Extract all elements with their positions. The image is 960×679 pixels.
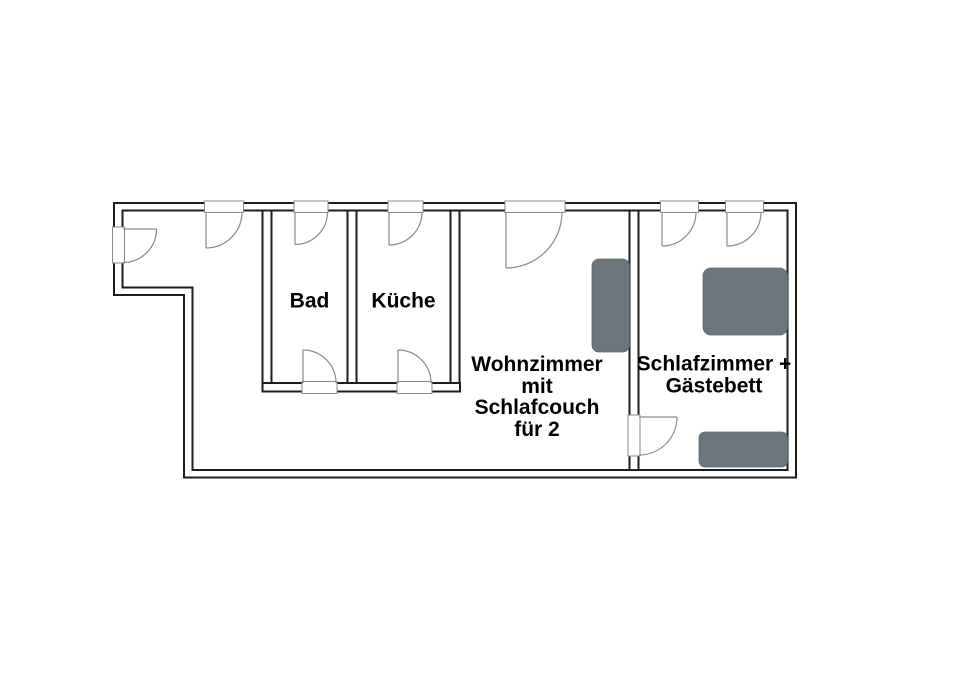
- wall-bad-left: [263, 211, 272, 392]
- doors: [113, 201, 764, 456]
- door-kueche-top: [388, 201, 423, 245]
- guest-bed: [699, 432, 788, 467]
- room-label-bad: Bad: [290, 290, 330, 312]
- wall-bad-kueche: [348, 211, 357, 392]
- door-schlafzimmer-top-1: [661, 201, 699, 246]
- floor-plan-canvas: [0, 0, 960, 679]
- double-bed: [703, 268, 788, 335]
- room-label-kueche: Küche: [371, 290, 435, 312]
- door-schlafzimmer-side: [628, 415, 677, 456]
- room-label-wohnzimmer: Wohnzimmer mit Schlafcouch für 2: [471, 354, 602, 440]
- floor-plan-page: Bad Küche Wohnzimmer mit Schlafcouch für…: [0, 0, 960, 679]
- door-entrance: [113, 227, 157, 263]
- door-kueche-bottom: [397, 350, 432, 394]
- room-label-schlafzimmer: Schlafzimmer + Gästebett: [637, 354, 792, 397]
- door-schlafzimmer-top-2: [726, 201, 764, 246]
- door-bad-top: [294, 201, 328, 245]
- door-wohnzimmer-top: [505, 201, 565, 268]
- door-hallway-top: [205, 201, 244, 248]
- door-bad-bottom: [302, 350, 337, 394]
- wall-kueche-right: [451, 211, 460, 392]
- sleeper-couch: [592, 259, 630, 352]
